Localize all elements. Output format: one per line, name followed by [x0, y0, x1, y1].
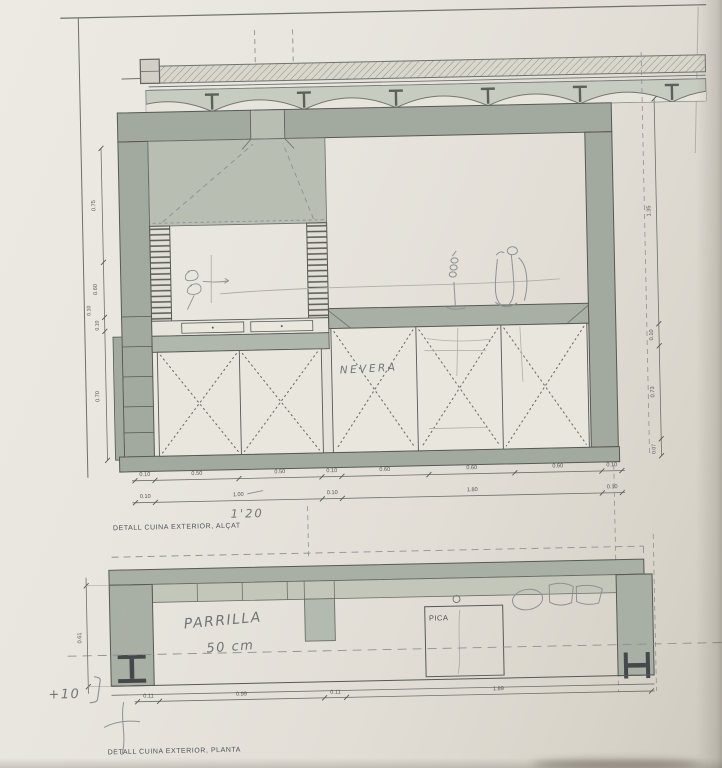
dim-label: 1.35: [646, 205, 652, 216]
dim-label: 1.80: [467, 487, 478, 493]
plan-title: DETALL CUINA EXTERIOR, PLANTA: [108, 747, 241, 757]
dim-label: 0.07: [651, 444, 657, 454]
dim-label: 0.60: [466, 465, 477, 471]
dim-label: 0.10: [607, 484, 618, 490]
plan-depth-dimension: 0.61: [76, 577, 111, 694]
dim-label: 0.10: [327, 490, 338, 496]
dim-label: 0.60: [552, 463, 563, 469]
plan-sink: PICA: [424, 595, 504, 677]
grill-counter-drawers: [152, 318, 330, 353]
flue-projection-lines: [255, 29, 294, 63]
right-wall: [585, 132, 619, 447]
counter-front-edge-2: [111, 684, 654, 695]
handwritten-counter-objects: [445, 247, 527, 310]
dim-label: 0.60: [93, 284, 99, 295]
dim-label: 0.10: [326, 468, 337, 474]
dim-label: 0.10: [649, 329, 655, 340]
dim-label: 0.50: [191, 471, 202, 477]
pica-label: PICA: [429, 613, 449, 622]
parapet-block: [121, 59, 159, 84]
elevation-right-dimensions: 1.35 0.10 0.73 0.07: [641, 52, 664, 459]
table-shadow-under-paper: [532, 760, 702, 768]
dim-label: 0.60: [379, 467, 390, 473]
technical-drawing: NEVERA 0.75 0.60 0.10 0.10 0.70: [0, 0, 722, 768]
plan-left-column: [109, 584, 154, 686]
paper-right-edge-shadow: [696, 0, 722, 768]
level-note-text: +10: [48, 687, 80, 703]
dim-label: 0.10: [140, 494, 151, 500]
dim-label: 0.50: [274, 469, 285, 475]
dim-label: 0.11: [143, 693, 154, 699]
chimney-hood: [148, 138, 327, 227]
roof-slab: [119, 47, 722, 114]
plan-drawing: PARRILLA 50 cm PICA: [46, 545, 722, 758]
dim-label: 0.73: [650, 386, 656, 397]
handwritten-parrilla-size: 50 cm: [206, 638, 255, 656]
dim-label: 0.70: [95, 391, 101, 402]
plan-grill-pier: [304, 599, 335, 642]
dim-label: 0.11: [330, 689, 341, 695]
dim-label: 0.10: [95, 320, 101, 330]
handwritten-parrilla-label: PARRILLA: [183, 609, 262, 632]
faucet-hole-icon: [453, 595, 460, 602]
dim-label: 0.75: [91, 200, 97, 211]
counter-front-edge: [111, 675, 654, 686]
dim-label: 1.00: [233, 492, 244, 498]
elevation-bottom-dimensions: 0.10 0.50 0.50 0.10 0.60 0.60 0.60 0.10 …: [132, 462, 626, 523]
handwritten-grill-sketch: [185, 255, 230, 310]
dim-label: 0.10: [139, 472, 150, 478]
handwritten-total-dimension: 1'20: [231, 506, 264, 521]
dim-label: 0.10: [86, 305, 92, 315]
dim-label: 0.99: [236, 691, 247, 697]
dim-label: 1.89: [493, 686, 504, 692]
drawing-sheet-photo: NEVERA 0.75 0.60 0.10 0.10 0.70: [0, 0, 722, 768]
brick-piers: [150, 223, 329, 322]
plan-right-column: [616, 574, 654, 679]
flue-through-lintel: [250, 110, 285, 140]
right-counter-cabinets: [328, 303, 591, 452]
elevation-drawing: NEVERA 0.75 0.60 0.10 0.10 0.70: [81, 20, 722, 533]
dim-label: 0.10: [606, 462, 617, 468]
dim-label: 0.61: [77, 632, 83, 643]
handwritten-level-note: +10: [48, 676, 141, 757]
left-base-cabinets: [157, 349, 323, 456]
elevation-title: DETALL CUINA EXTERIOR, ALÇAT: [113, 523, 241, 533]
pencil-guide-line: [220, 279, 560, 294]
plan-bottom-dimensions: 0.11 0.99 0.11 1.89: [134, 683, 654, 704]
